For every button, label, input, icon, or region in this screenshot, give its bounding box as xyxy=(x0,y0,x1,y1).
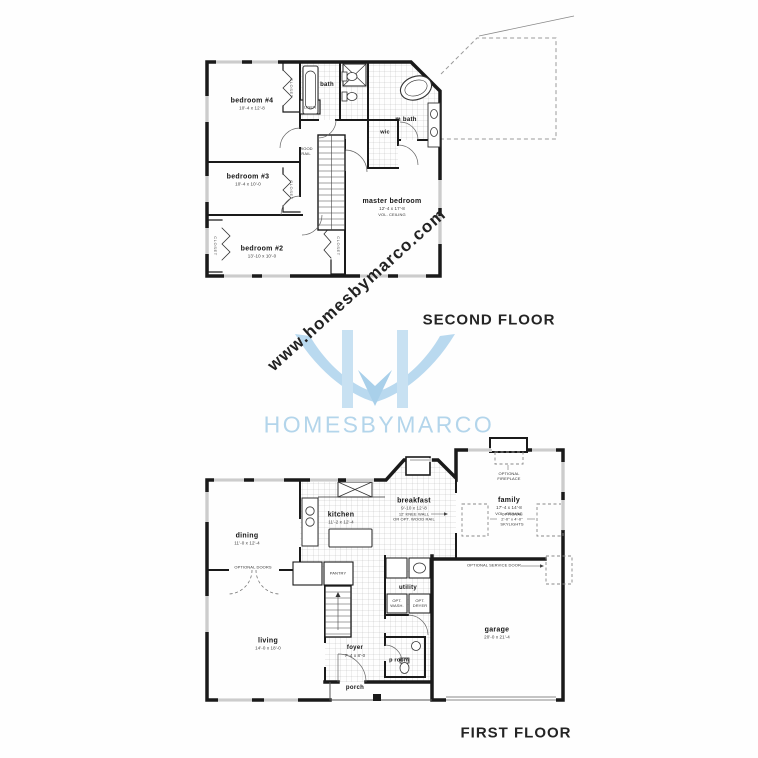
room-label-master-bath: m bath xyxy=(395,117,416,125)
room-label-foyer: foyer 7'-4 x 8'-0 xyxy=(345,645,366,659)
room-label-master-bedroom: master bedroom 12'-4 x 17'-8 VOL. CEILIN… xyxy=(362,197,421,217)
room-label-porch: porch xyxy=(346,685,364,693)
optional-doors-arcs xyxy=(228,570,280,594)
label-wood-rail: WOOD RAIL xyxy=(299,146,312,156)
first-floor-title: FIRST FLOOR xyxy=(461,723,572,743)
label-optional-doors: OPTIONAL DOORS xyxy=(234,565,271,570)
room-label-breakfast: breakfast 9'-10 x 12'-8 12' KNEE WALL OR… xyxy=(393,497,435,522)
room-label-bedroom4: bedroom #4 10'-4 x 12'-8 xyxy=(231,97,274,112)
floor-plan-drawing xyxy=(0,0,758,758)
room-label-bedroom3: bedroom #3 10'-4 x 10'-0 xyxy=(227,173,270,188)
label-opt-dryer: OPT. DRYER xyxy=(413,598,427,608)
label-closet-bedroom4: CLOSET xyxy=(289,78,293,98)
second-floor-plan xyxy=(207,16,574,276)
second-floor-title: SECOND FLOOR xyxy=(423,310,556,330)
label-linen: LINEN xyxy=(304,105,316,110)
room-label-dining: dining 11'-0 x 12'-4 xyxy=(234,532,259,547)
label-opt-washer: OPT. WASH. xyxy=(390,598,403,608)
homesbymarco-wordmark: HOMESBYMARCO xyxy=(264,412,495,439)
label-closet-bedroom2-left: CLOSET xyxy=(213,236,217,256)
room-label-powder-room: p room xyxy=(389,657,409,664)
room-label-kitchen: kitchen 11'-2 x 12'-4 xyxy=(328,511,355,526)
label-closet-bedroom2-right: CLOSET xyxy=(336,236,340,256)
label-optional-fireplace: OPTIONAL FIREPLACE xyxy=(497,471,520,481)
room-label-living: living 14'-0 x 18'-0 xyxy=(255,637,281,652)
room-label-wic: wic xyxy=(380,129,389,136)
label-pantry: PANTRY xyxy=(330,571,346,576)
homesbymarco-logo-icon xyxy=(295,330,455,408)
floor-plan-sheet: bedroom #4 10'-4 x 12'-8 bedroom #3 10'-… xyxy=(0,0,758,758)
room-label-utility: utility xyxy=(399,585,417,593)
label-closet-bedroom3: CLOSET xyxy=(289,180,293,200)
room-label-bath: bath xyxy=(320,82,334,90)
first-floor-stairs xyxy=(325,586,351,637)
label-optional-service-door: OPTIONAL SERVICE DOOR xyxy=(467,563,521,568)
label-optional-skylights: OPTIONAL 2'-0" x 4'-0" SKYLIGHTS xyxy=(500,512,523,527)
second-floor-roof-outline xyxy=(441,38,556,139)
room-label-garage: garage 20'-0 x 21'-4 xyxy=(484,626,510,641)
room-label-bedroom2: bedroom #2 13'-10 x 10'-0 xyxy=(241,245,284,260)
